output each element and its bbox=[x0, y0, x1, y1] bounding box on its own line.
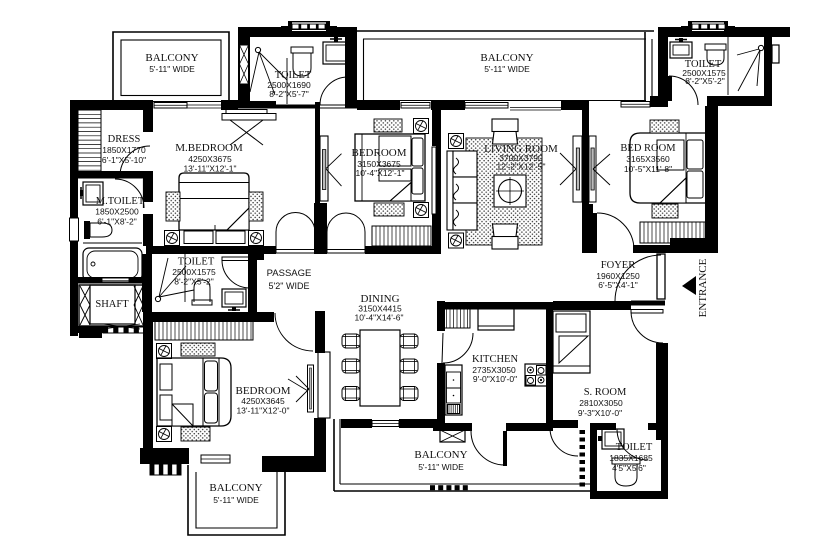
svg-text:DRESS: DRESS bbox=[108, 134, 141, 145]
svg-text:10'-4"X14'-6": 10'-4"X14'-6" bbox=[355, 313, 404, 323]
svg-text:5'-11" WIDE: 5'-11" WIDE bbox=[213, 495, 259, 505]
svg-text:6'-1"X5'-10": 6'-1"X5'-10" bbox=[102, 155, 146, 165]
svg-text:BALCONY: BALCONY bbox=[145, 52, 198, 64]
svg-text:13'-11"X12'-1": 13'-11"X12'-1" bbox=[183, 164, 236, 174]
svg-text:1850X2500: 1850X2500 bbox=[95, 207, 139, 217]
svg-text:SHAFT: SHAFT bbox=[95, 299, 129, 310]
svg-text:6'-5"X4'-1": 6'-5"X4'-1" bbox=[598, 280, 638, 290]
svg-text:5'-11" WIDE: 5'-11" WIDE bbox=[149, 64, 195, 74]
svg-text:4250X3675: 4250X3675 bbox=[188, 154, 232, 164]
svg-text:4250X3645: 4250X3645 bbox=[241, 396, 285, 406]
svg-text:9'-0"X10'-0": 9'-0"X10'-0" bbox=[473, 374, 517, 384]
svg-text:6'-1"X8'-2": 6'-1"X8'-2" bbox=[97, 217, 137, 227]
svg-text:1835X1685: 1835X1685 bbox=[609, 453, 653, 463]
svg-text:12'-2"X12'-5": 12'-2"X12'-5" bbox=[497, 162, 546, 172]
svg-text:BALCONY: BALCONY bbox=[414, 449, 467, 461]
svg-text:1850X1770: 1850X1770 bbox=[102, 145, 146, 155]
svg-text:FOYER: FOYER bbox=[601, 260, 635, 271]
svg-text:BED ROOM: BED ROOM bbox=[620, 143, 676, 154]
svg-text:13'-11"X12'-0": 13'-11"X12'-0" bbox=[236, 406, 289, 416]
svg-text:PASSAGE: PASSAGE bbox=[267, 268, 312, 279]
svg-text:10'-4"X12'-1": 10'-4"X12'-1" bbox=[356, 168, 405, 178]
svg-text:ENTRANCE: ENTRANCE bbox=[697, 258, 709, 317]
svg-text:M.TOILET: M.TOILET bbox=[96, 196, 145, 207]
svg-text:TOILET: TOILET bbox=[178, 257, 215, 268]
svg-text:4'5"X5'6": 4'5"X5'6" bbox=[612, 463, 646, 473]
svg-text:8'-2"X5'-7": 8'-2"X5'-7" bbox=[269, 89, 309, 99]
svg-text:BEDROOM: BEDROOM bbox=[351, 147, 406, 159]
svg-text:BALCONY: BALCONY bbox=[480, 52, 533, 64]
svg-text:5'-11" WIDE: 5'-11" WIDE bbox=[418, 462, 464, 472]
svg-text:8'-2"X5'-2": 8'-2"X5'-2" bbox=[685, 76, 725, 86]
svg-text:M.BEDROOM: M.BEDROOM bbox=[175, 142, 243, 154]
svg-text:5'-11" WIDE: 5'-11" WIDE bbox=[484, 64, 530, 74]
svg-text:9'-3"X10'-0": 9'-3"X10'-0" bbox=[578, 408, 622, 418]
svg-text:S. ROOM: S. ROOM bbox=[584, 387, 627, 398]
svg-text:2810X3050: 2810X3050 bbox=[579, 398, 623, 408]
svg-text:10'-5"X11'-8": 10'-5"X11'-8" bbox=[624, 164, 672, 174]
svg-text:KITCHEN: KITCHEN bbox=[472, 354, 518, 365]
svg-text:3165X3560: 3165X3560 bbox=[626, 154, 670, 164]
svg-text:2500X1575: 2500X1575 bbox=[172, 267, 216, 277]
svg-text:TOILET: TOILET bbox=[616, 442, 653, 453]
svg-text:8'-2"X5'-2": 8'-2"X5'-2" bbox=[174, 277, 214, 287]
svg-text:BALCONY: BALCONY bbox=[209, 482, 262, 494]
svg-text:5'2" WIDE: 5'2" WIDE bbox=[269, 281, 310, 291]
